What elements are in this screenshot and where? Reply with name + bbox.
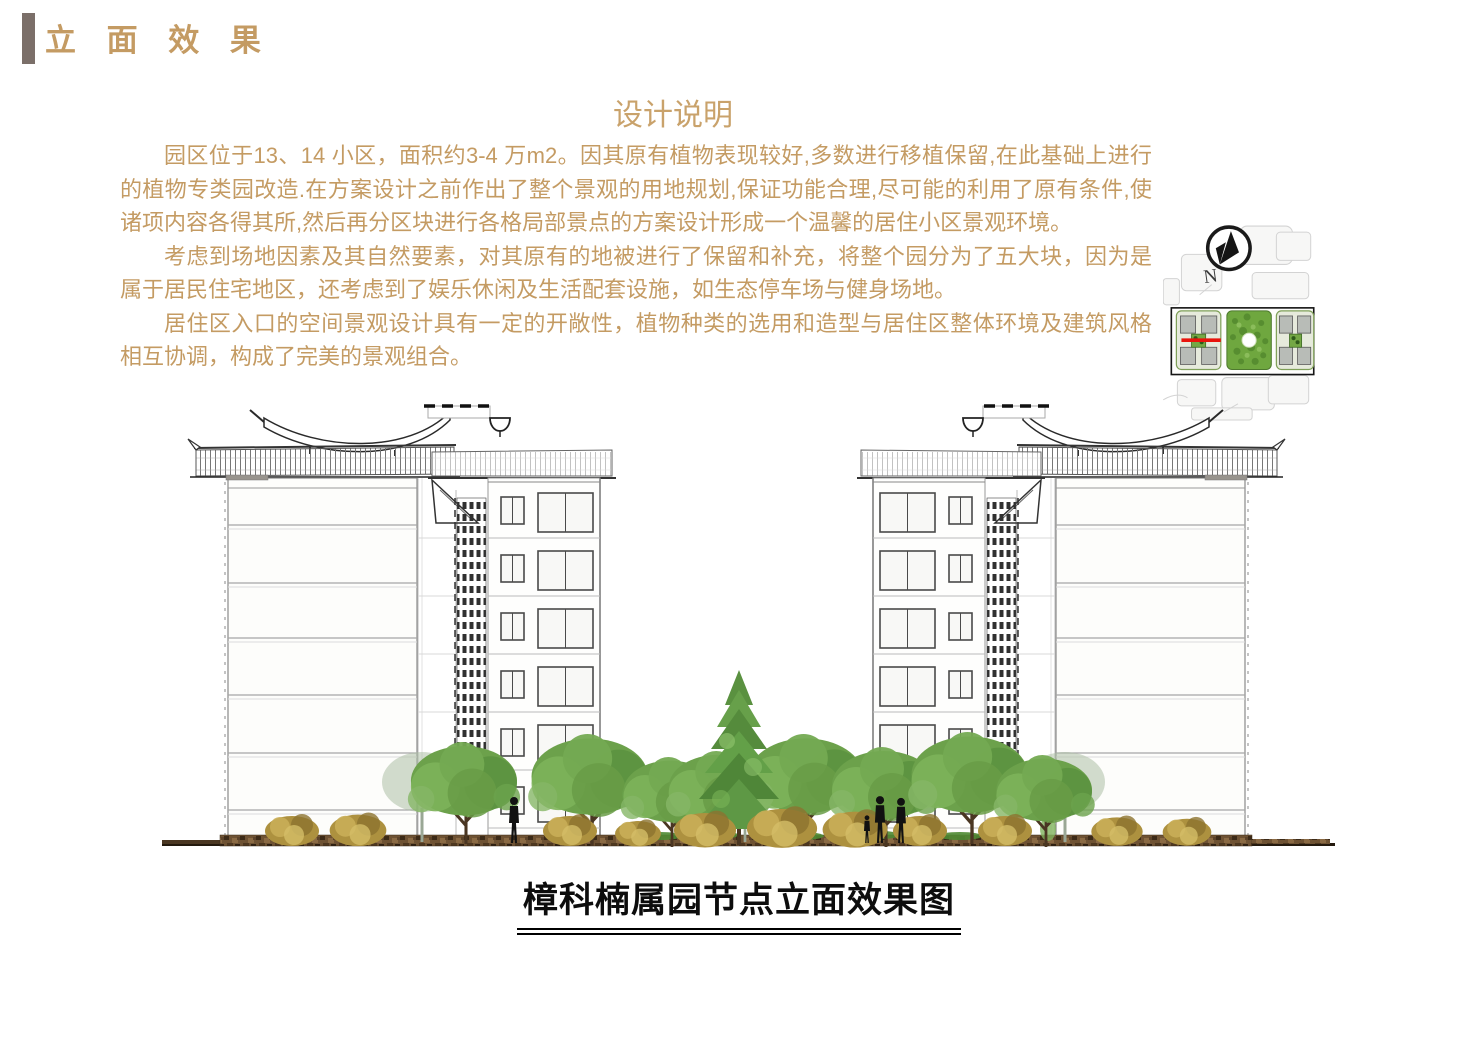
- garden-square-center: [1227, 311, 1271, 370]
- compass-icon: [1208, 227, 1250, 269]
- paragraph-3: 居住区入口的空间景观设计具有一定的开敞性，植物种类的选用和造型与居住区整体环境及…: [120, 307, 1152, 374]
- section-heading: 设计说明: [120, 90, 1226, 134]
- design-description: 园区位于13、14 小区，面积约3-4 万m2。因其原有植物表现较好,多数进行移…: [120, 139, 1152, 374]
- elevation-svg: [160, 392, 1340, 862]
- drawing-caption: 樟科楠属园节点立面效果图: [0, 872, 1478, 935]
- drawing-caption-text: 樟科楠属园节点立面效果图: [517, 872, 961, 935]
- elevation-drawing: [160, 392, 1340, 862]
- paragraph-1: 园区位于13、14 小区，面积约3-4 万m2。因其原有植物表现较好,多数进行移…: [120, 139, 1152, 240]
- paragraph-2: 考虑到场地因素及其自然要素，对其原有的地被进行了保留和补充，将整个园分为了五大块…: [120, 240, 1152, 307]
- garden-square-east: [1276, 311, 1313, 370]
- page-title: 立 面 效 果: [45, 15, 272, 60]
- title-accent-bar: [22, 13, 35, 64]
- page: 立 面 效 果 设计说明 园区位于13、14 小区，面积约3-4 万m2。因其原…: [0, 0, 1478, 1042]
